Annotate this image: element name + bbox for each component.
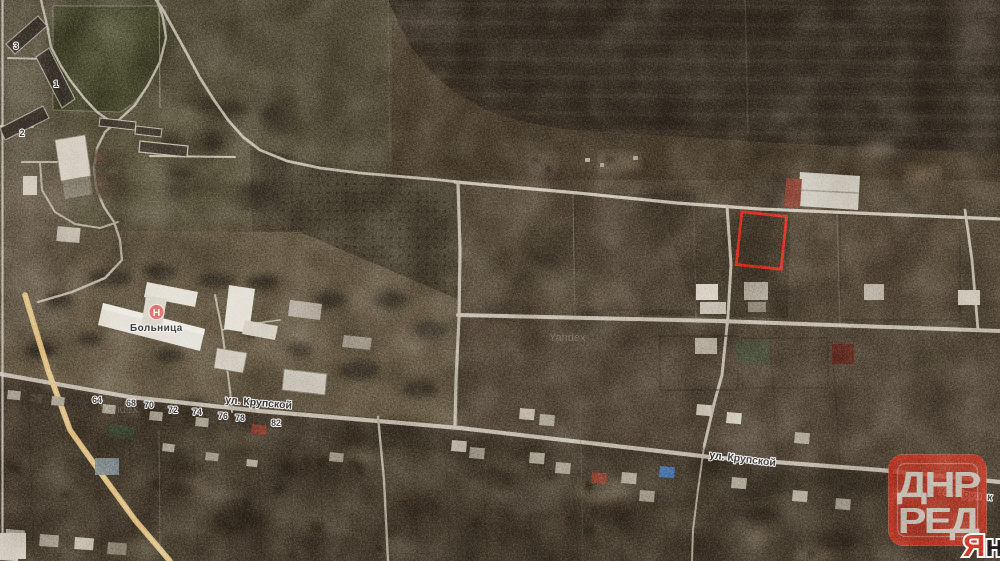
- svg-text:70: 70: [144, 400, 154, 410]
- svg-text:Yandex: Yandex: [100, 404, 138, 416]
- svg-text:Яндекс: Яндекс: [963, 528, 1000, 561]
- svg-text:Больница: Больница: [130, 323, 183, 334]
- svg-text:2: 2: [19, 128, 24, 138]
- svg-text:82: 82: [271, 418, 281, 428]
- svg-text:74: 74: [192, 407, 202, 417]
- svg-text:Yandex: Yandex: [549, 332, 586, 344]
- svg-text:78: 78: [235, 413, 245, 423]
- svg-text:3: 3: [13, 41, 18, 51]
- svg-text:76: 76: [218, 411, 228, 421]
- svg-text:72: 72: [168, 405, 178, 415]
- svg-text:1: 1: [53, 79, 58, 89]
- svg-text:H: H: [153, 307, 161, 319]
- svg-text:ДНР: ДНР: [897, 465, 981, 505]
